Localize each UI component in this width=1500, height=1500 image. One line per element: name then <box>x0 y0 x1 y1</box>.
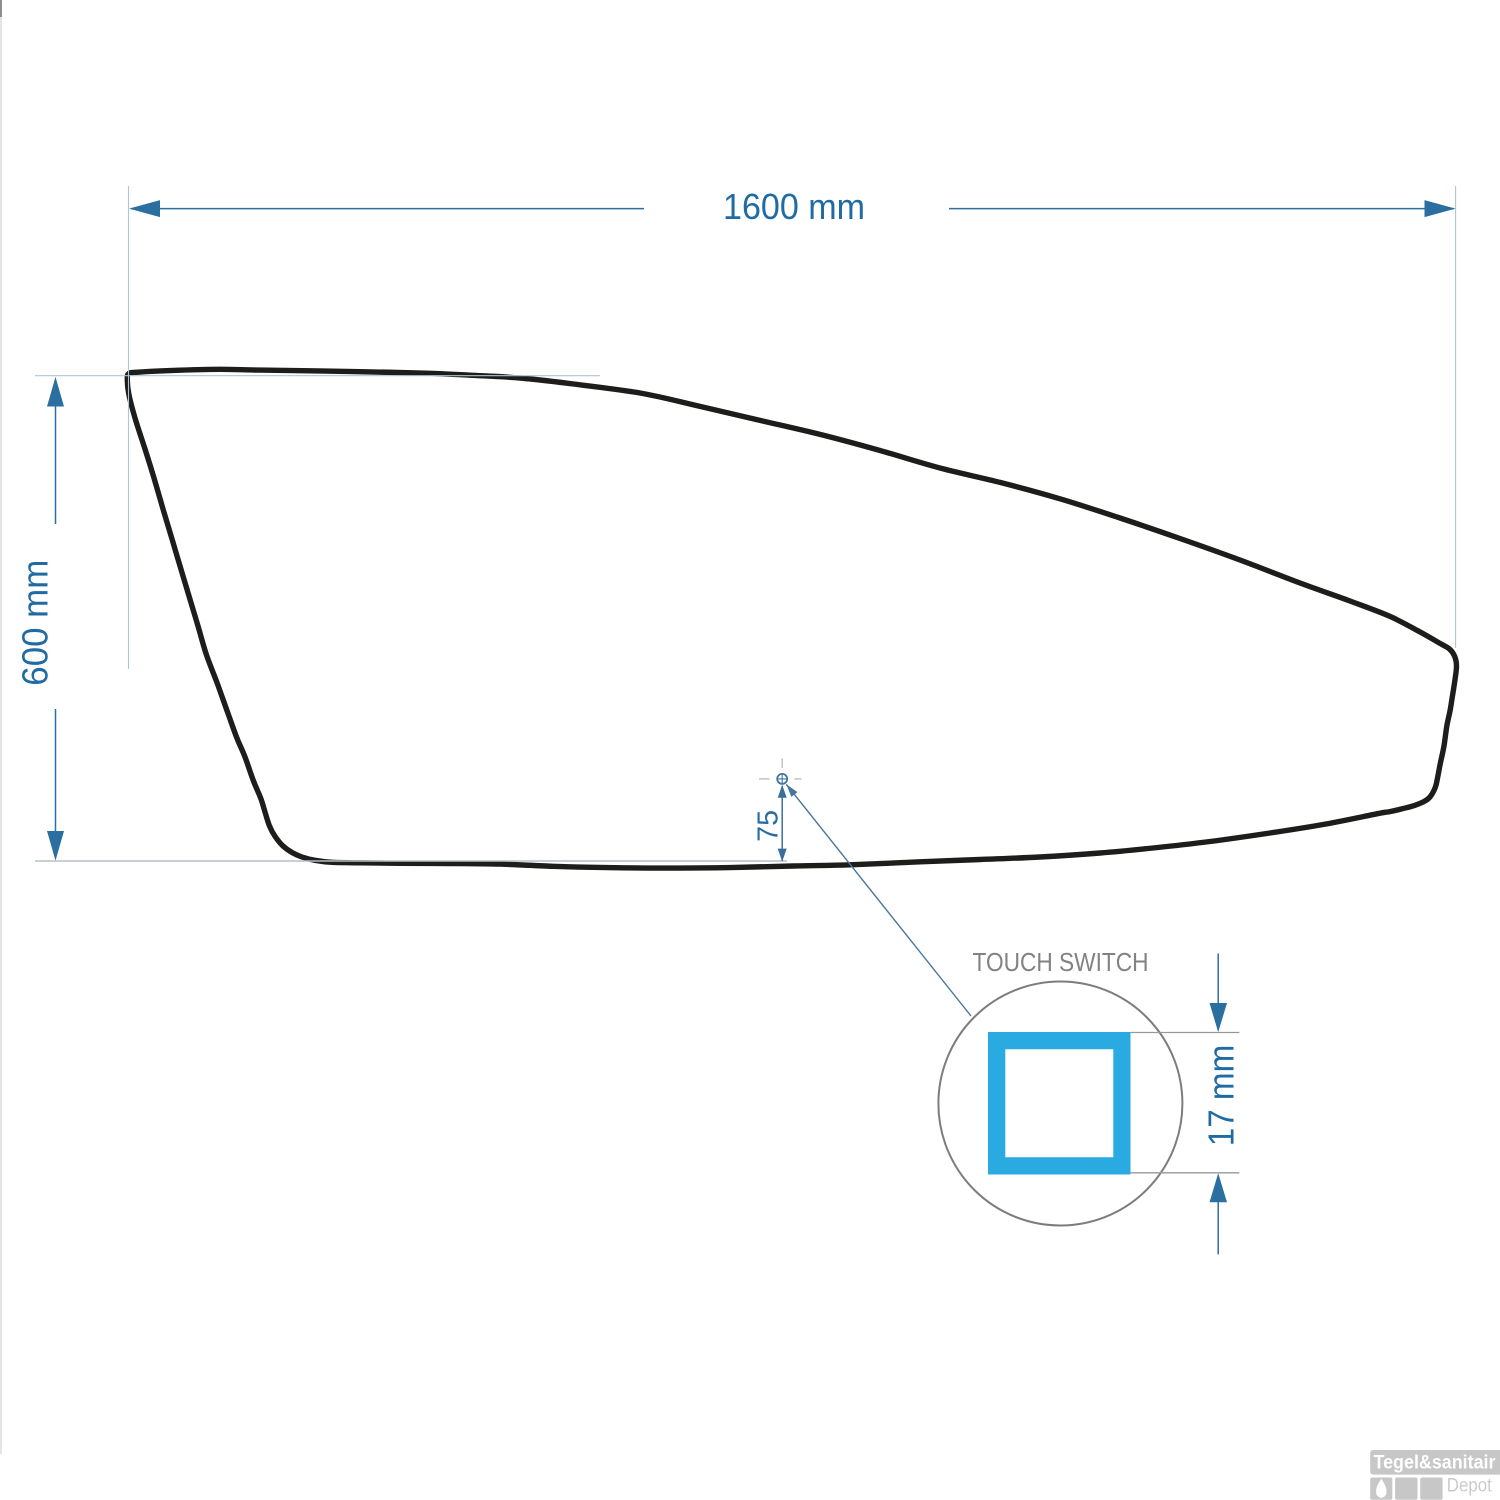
svg-text:17 mm: 17 mm <box>1201 1045 1242 1147</box>
svg-text:75: 75 <box>753 810 785 842</box>
svg-text:Tegel&sanitair: Tegel&sanitair <box>1374 1453 1497 1474</box>
svg-text:TOUCH SWITCH: TOUCH SWITCH <box>973 947 1149 977</box>
svg-text:1600 mm: 1600 mm <box>723 186 865 227</box>
svg-text:600 mm: 600 mm <box>15 560 56 686</box>
svg-text:Depot: Depot <box>1447 1476 1493 1497</box>
